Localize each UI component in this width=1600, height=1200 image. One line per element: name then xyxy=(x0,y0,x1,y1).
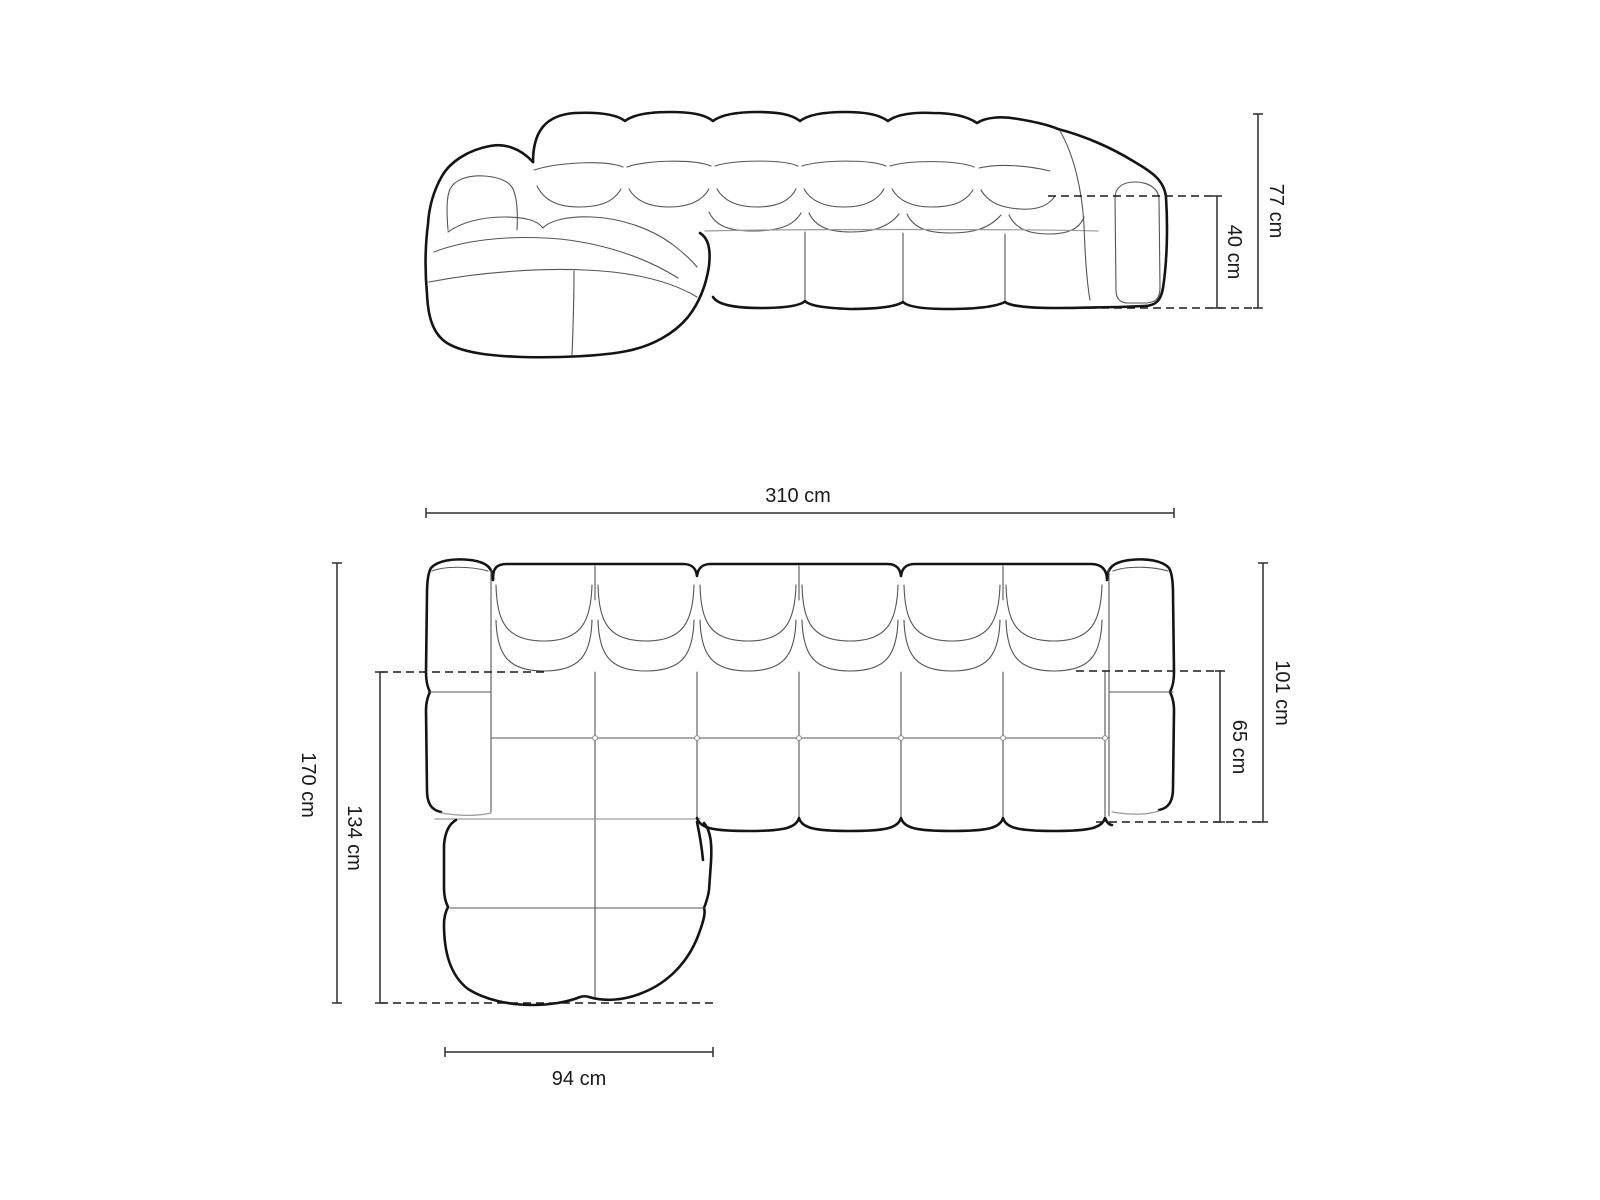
front-back-cushions-outline xyxy=(533,112,1167,307)
plan-right-arm-outline xyxy=(1107,559,1174,810)
dim-label-arm-height: 40 cm xyxy=(1223,225,1245,279)
diagram-svg: 77 cm 40 cm xyxy=(0,0,1600,1200)
dim-total-height: 77 cm xyxy=(1253,114,1287,308)
front-back-tuft-seam xyxy=(534,161,1050,171)
dim-label-total-height: 77 cm xyxy=(1265,184,1287,238)
front-view-dimensions: 77 cm 40 cm xyxy=(1212,114,1287,308)
seam-node xyxy=(593,736,598,741)
front-right-arm-panel xyxy=(1115,182,1160,303)
dim-total-depth: 170 cm xyxy=(297,563,342,1003)
plan-seat-cushion-tops xyxy=(496,620,1102,671)
plan-seat-vertical-seams xyxy=(595,672,1105,997)
front-left-arm-panel xyxy=(447,176,517,230)
dim-chaise-depth: 134 cm xyxy=(343,672,385,1003)
front-chaise-front-edge xyxy=(429,270,697,298)
plan-body-bottom-edge xyxy=(697,818,1112,831)
plan-left-arm-outline xyxy=(426,559,493,812)
seam-node xyxy=(797,736,802,741)
front-chaise-top-curves xyxy=(434,217,697,278)
plan-left-arm-inner-top xyxy=(432,567,488,571)
dim-seat-depth: 65 cm xyxy=(1215,671,1250,822)
plan-right-arm-bottom xyxy=(1112,811,1159,814)
front-chaise-front-seam xyxy=(572,271,574,355)
seam-node xyxy=(1001,736,1006,741)
seam-node xyxy=(1103,736,1108,741)
plan-back-top-edge xyxy=(493,564,1107,578)
front-seat-bottom-edge xyxy=(713,297,1120,309)
plan-right-arm-inner-top xyxy=(1113,567,1168,571)
dim-label-total-width: 310 cm xyxy=(765,485,831,507)
seam-node xyxy=(695,736,700,741)
dim-label-seat-depth: 65 cm xyxy=(1228,720,1250,774)
dim-arm-height: 40 cm xyxy=(1212,196,1245,308)
dim-label-chaise-width: 94 cm xyxy=(552,1068,606,1090)
plan-back-seam-verticals xyxy=(595,566,1003,600)
top-view-dimensions: 310 cm 170 cm 134 cm 101 cm 65 cm 94 cm xyxy=(297,485,1293,1090)
plan-left-arm-bottom xyxy=(441,813,491,815)
dim-label-body-depth: 101 cm xyxy=(1271,660,1293,726)
dim-label-total-depth: 170 cm xyxy=(297,752,319,818)
dim-body-depth: 101 cm xyxy=(1258,563,1293,822)
front-view-drawing xyxy=(426,112,1258,357)
seam-node xyxy=(899,736,904,741)
sofa-dimension-diagram: 77 cm 40 cm xyxy=(0,0,1600,1200)
dim-chaise-width: 94 cm xyxy=(445,1047,713,1090)
top-view-drawing xyxy=(380,559,1264,1005)
front-seat-cushion-tops xyxy=(709,212,1084,234)
front-back-cushion-bottoms xyxy=(537,186,1055,209)
plan-chaise-outline xyxy=(444,820,711,1005)
dim-label-chaise-depth: 134 cm xyxy=(343,805,365,871)
front-right-arm-contour xyxy=(1060,131,1090,300)
dim-total-width: 310 cm xyxy=(426,485,1174,518)
front-seat-vertical-seams xyxy=(805,232,1005,302)
